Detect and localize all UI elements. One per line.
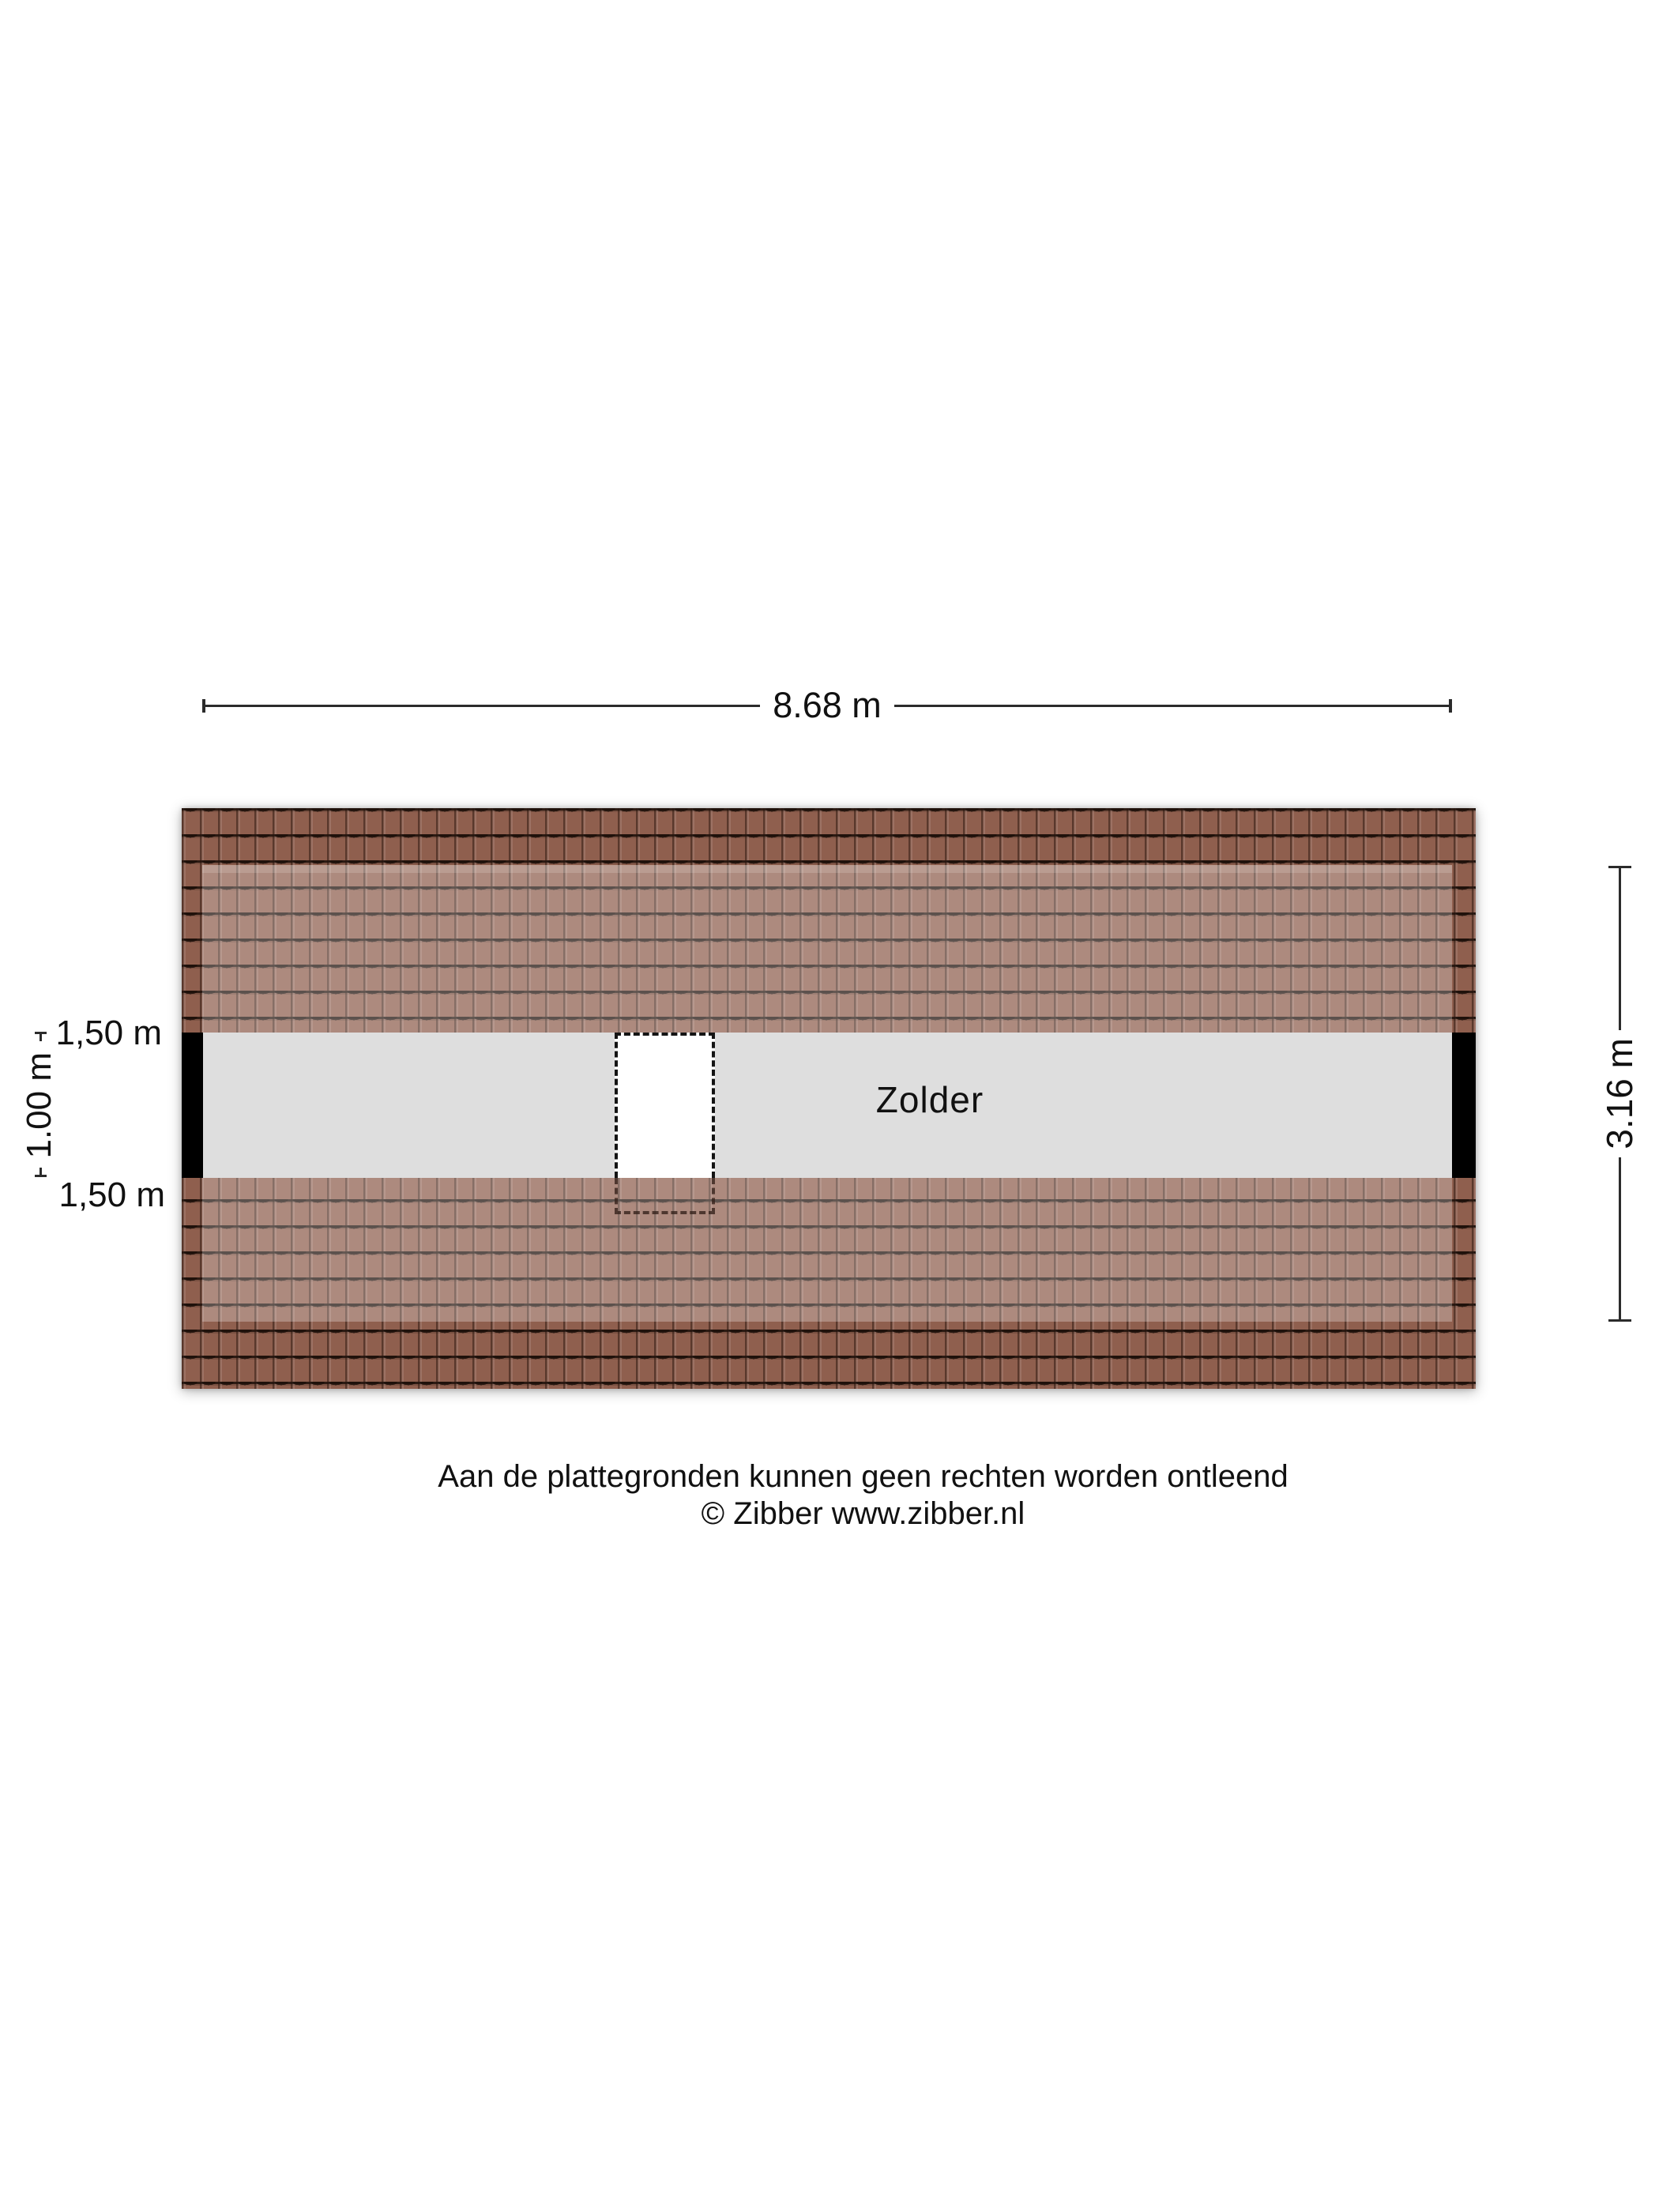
- width-dimension: 8.68 m: [202, 693, 1452, 718]
- room-label: Zolder: [876, 1078, 984, 1121]
- footer: Aan de plattegronden kunnen geen rechten…: [67, 1458, 1659, 1533]
- floor-width-bottom-tick-stem: [39, 1168, 42, 1177]
- floorplan-page: 8.68 m Zolder 1,50 m 1,50 m 1.00 m 3.16 …: [0, 0, 1659, 2212]
- depth-dimension: 3.16 m: [1608, 866, 1631, 1322]
- depth-dimension-bottom-tick: [1608, 1319, 1631, 1322]
- attic-floorplan: Zolder: [182, 808, 1476, 1389]
- contour-label-bottom: 1,50 m: [35, 1176, 165, 1215]
- right-wall: [1452, 1033, 1476, 1178]
- stair-opening: [615, 1033, 715, 1178]
- width-dimension-left-line: [205, 705, 760, 707]
- width-dimension-label: 8.68 m: [760, 693, 894, 718]
- floor-width-top-tick-stem: [39, 1032, 42, 1041]
- left-wall: [182, 1033, 203, 1178]
- stair-opening-extension: [615, 1178, 715, 1214]
- floor-width-label: 1.00 m: [20, 1052, 59, 1159]
- depth-dimension-text: 3.16 m: [1608, 1038, 1631, 1149]
- depth-dimension-bottom-line: [1619, 1157, 1621, 1319]
- floor-width-dimension: 1.00 m: [17, 1033, 62, 1178]
- depth-dimension-top-line: [1619, 868, 1621, 1030]
- copyright-text: © Zibber www.zibber.nl: [67, 1495, 1659, 1533]
- width-dimension-right-tick: [1449, 699, 1452, 713]
- width-dimension-right-line: [894, 705, 1449, 707]
- disclaimer-text: Aan de plattegronden kunnen geen rechten…: [67, 1458, 1659, 1495]
- attic-floor-strip: [202, 1033, 1452, 1178]
- depth-dimension-label: 3.16 m: [1608, 1038, 1631, 1149]
